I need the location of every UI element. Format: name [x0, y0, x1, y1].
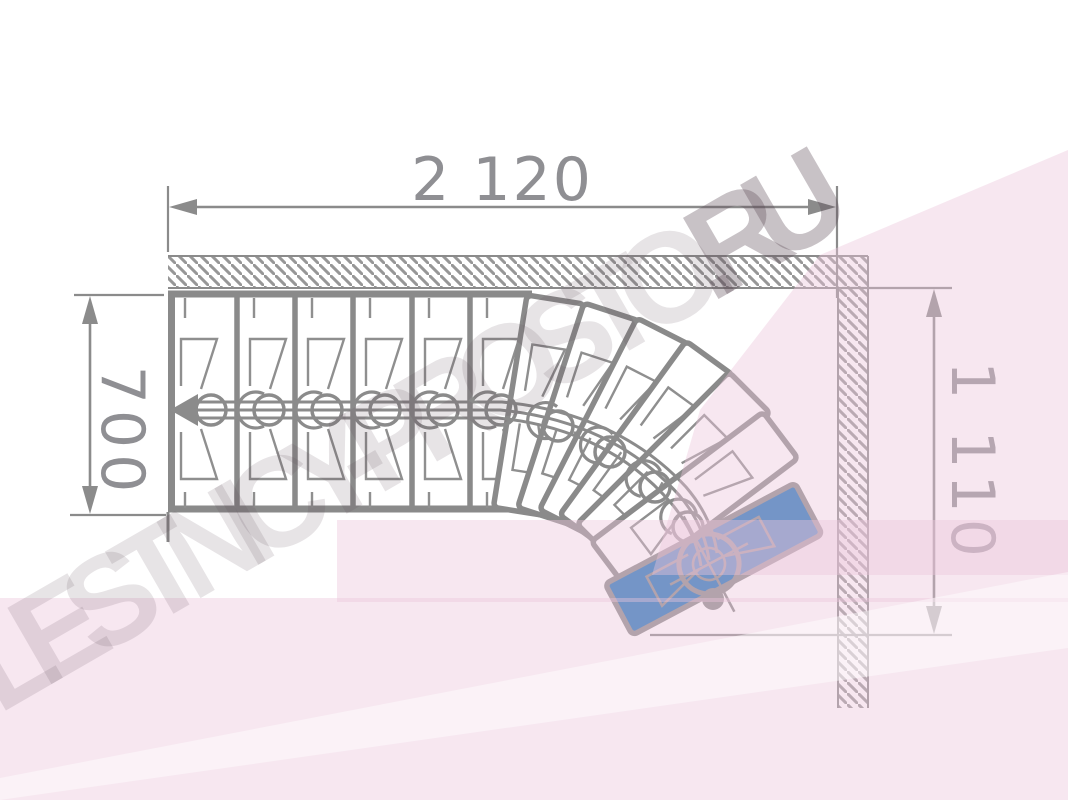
pole-base-dot — [702, 588, 724, 610]
stair-plan-drawing — [0, 0, 1068, 800]
dimension-label-right: 1 110 — [942, 361, 1002, 563]
top-wall — [168, 256, 868, 288]
dimension-label-top: 2 120 — [382, 150, 622, 210]
dimension-label-left: 700 — [92, 366, 152, 499]
right-wall — [838, 256, 868, 708]
stair-plan-canvas: 2 120 700 1 110 LESTNICY-PROSTO.RU — [0, 0, 1068, 800]
